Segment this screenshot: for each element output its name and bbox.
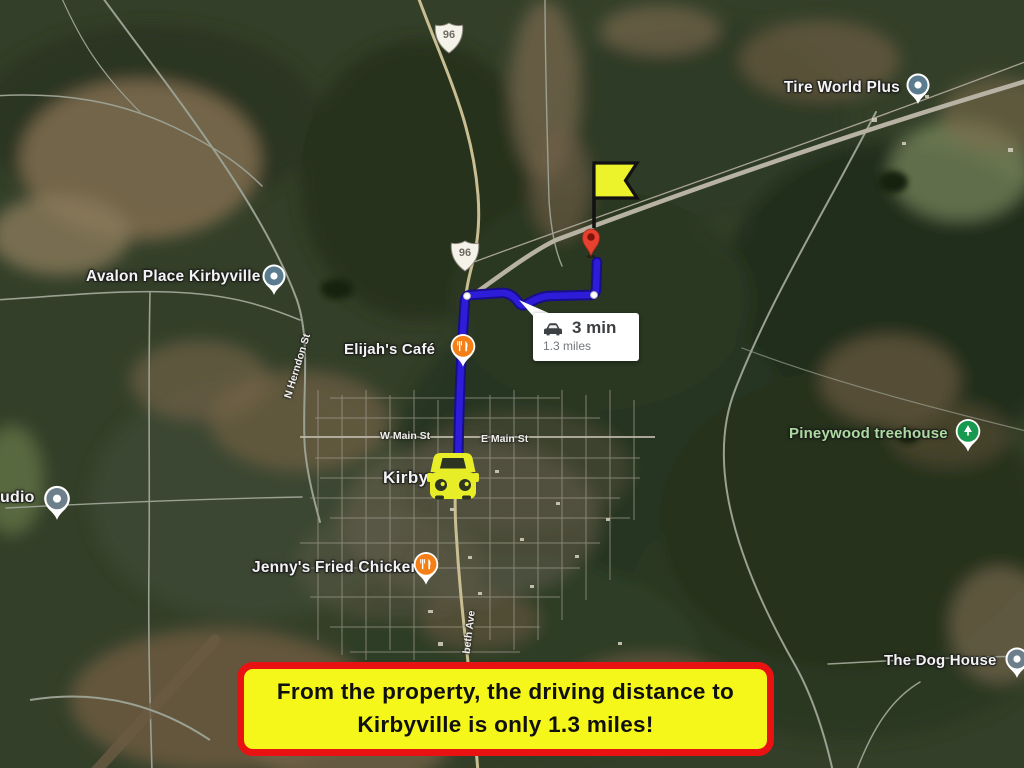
banner-line-2: Kirbyville is only 1.3 miles!: [357, 709, 653, 742]
banner-line-1: From the property, the driving distance …: [277, 676, 734, 709]
route-distance: 1.3 miles: [543, 339, 631, 353]
promo-banner: From the property, the driving distance …: [237, 662, 774, 756]
route-duration: 3 min: [572, 318, 616, 338]
car-icon: [542, 321, 564, 336]
map-screenshot: W Main St E Main St N Herndon St beth Av…: [0, 0, 1024, 768]
route-summary-box[interactable]: 3 min 1.3 miles: [533, 313, 639, 361]
